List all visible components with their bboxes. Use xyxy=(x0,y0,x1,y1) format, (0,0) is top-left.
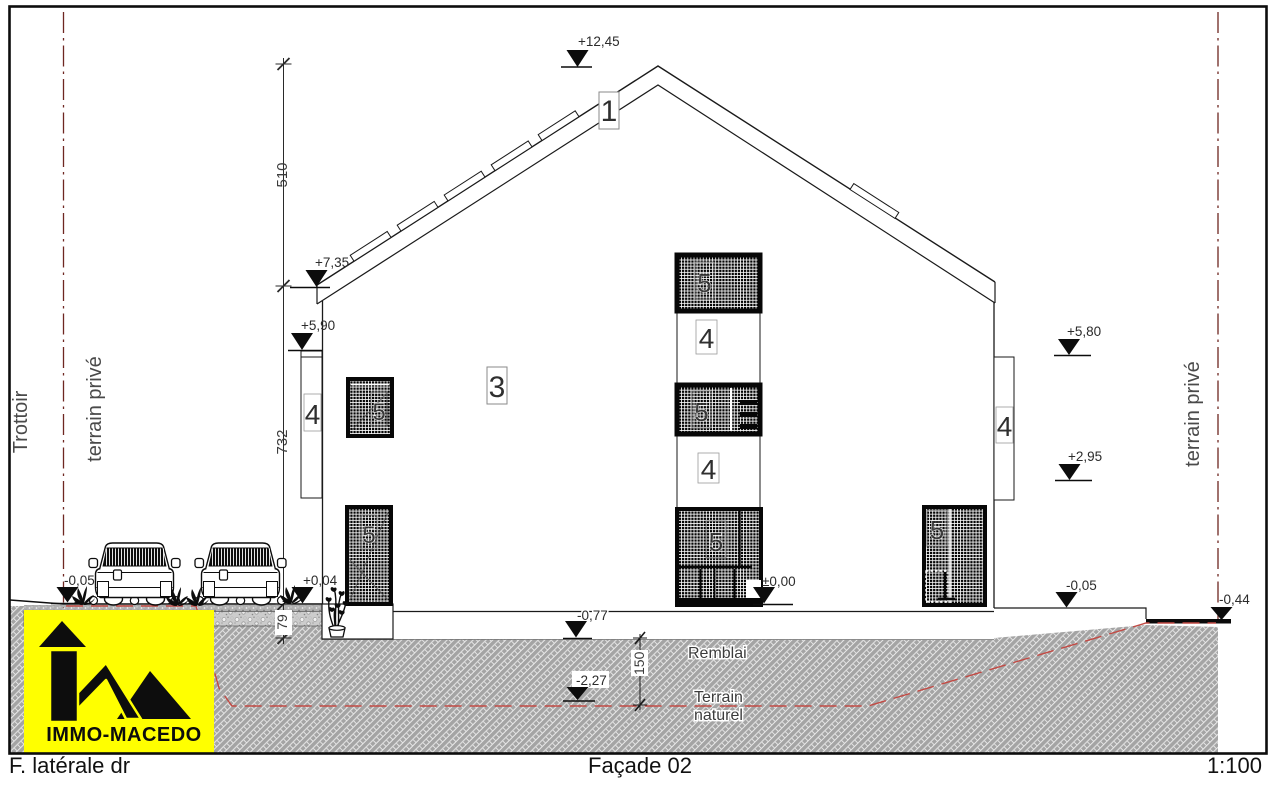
svg-text:5: 5 xyxy=(697,268,711,298)
svg-text:±0,00: ±0,00 xyxy=(762,574,796,589)
svg-text:+0,04: +0,04 xyxy=(303,573,338,588)
svg-text:-2,27: -2,27 xyxy=(576,673,607,688)
svg-text:5: 5 xyxy=(709,527,723,557)
svg-text:4: 4 xyxy=(997,411,1013,442)
svg-text:+5,90: +5,90 xyxy=(301,318,335,333)
svg-text:-0,77: -0,77 xyxy=(577,608,608,623)
svg-text:510: 510 xyxy=(274,162,291,187)
svg-text:3: 3 xyxy=(489,371,506,404)
svg-text:+12,45: +12,45 xyxy=(578,34,620,49)
svg-text:150: 150 xyxy=(631,651,647,675)
svg-text:+5,80: +5,80 xyxy=(1067,324,1101,339)
svg-text:Trottoir: Trottoir xyxy=(10,390,32,453)
svg-text:Terrain: Terrain xyxy=(694,689,743,706)
svg-text:terrain privé: terrain privé xyxy=(1182,361,1204,467)
svg-text:4: 4 xyxy=(305,399,321,430)
svg-text:732: 732 xyxy=(274,429,291,454)
svg-text:5: 5 xyxy=(362,522,375,549)
svg-text:-0,05: -0,05 xyxy=(64,573,95,588)
svg-text:Façade 02: Façade 02 xyxy=(588,753,692,778)
svg-text:1: 1 xyxy=(601,95,618,128)
svg-text:79: 79 xyxy=(274,614,290,630)
svg-text:terrain privé: terrain privé xyxy=(84,356,106,462)
svg-text:5: 5 xyxy=(930,515,944,545)
svg-text:Remblai: Remblai xyxy=(688,645,747,662)
svg-text:+7,35: +7,35 xyxy=(315,255,349,270)
svg-text:IMMO-MACEDO: IMMO-MACEDO xyxy=(46,724,201,746)
svg-text:5: 5 xyxy=(372,399,385,426)
svg-text:-0,05: -0,05 xyxy=(1066,578,1097,593)
svg-text:+2,95: +2,95 xyxy=(1068,449,1102,464)
svg-text:4: 4 xyxy=(701,454,717,485)
svg-text:5: 5 xyxy=(694,397,708,427)
svg-text:F. latérale dr: F. latérale dr xyxy=(9,753,130,778)
svg-text:4: 4 xyxy=(699,323,715,354)
svg-text:-0,44: -0,44 xyxy=(1219,592,1250,607)
svg-text:naturel: naturel xyxy=(694,707,743,724)
svg-text:1:100: 1:100 xyxy=(1207,753,1262,778)
